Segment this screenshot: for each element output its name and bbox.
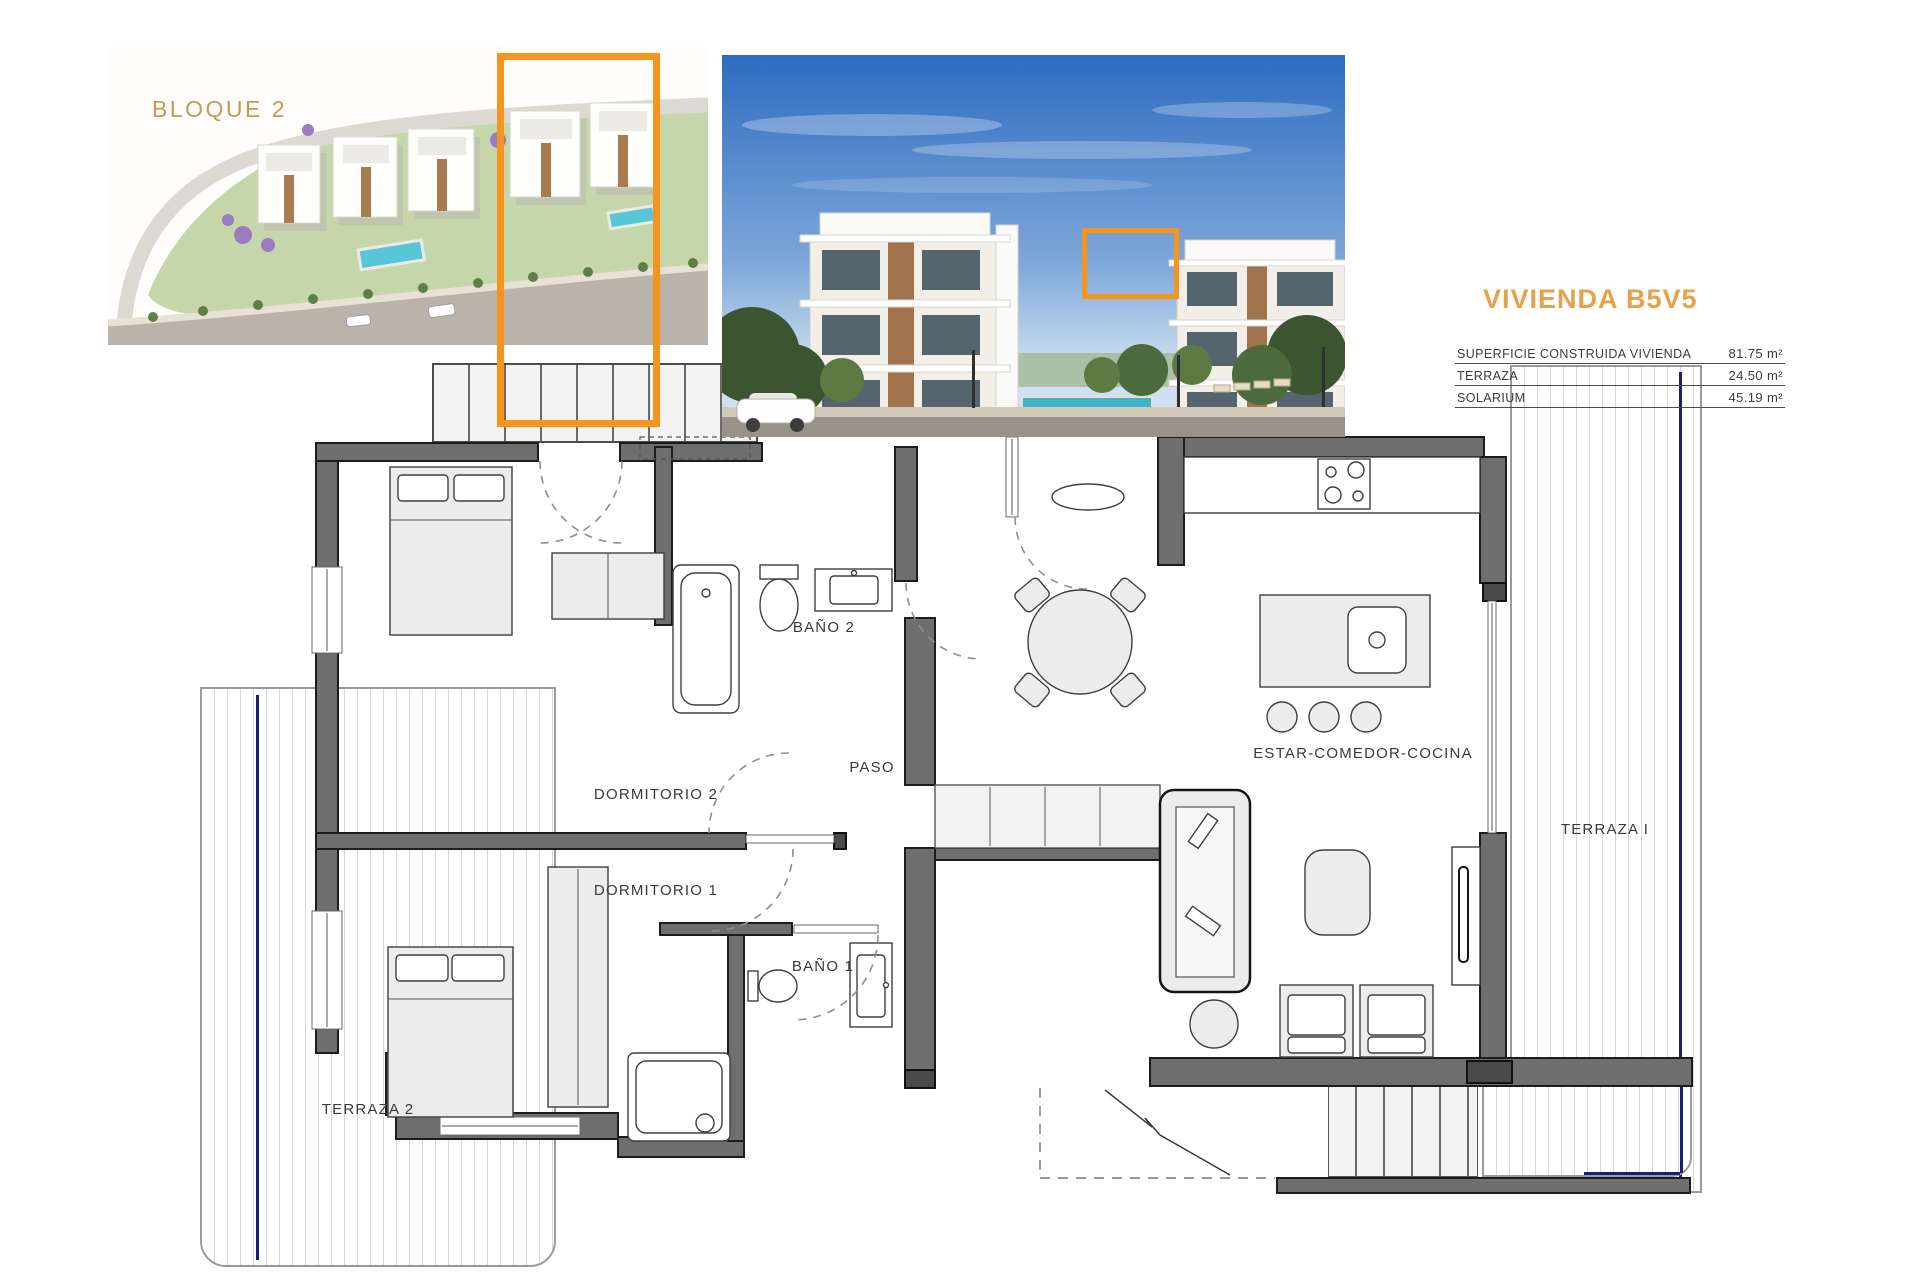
area-label: SOLARIUM — [1457, 391, 1526, 405]
porch-table — [1052, 484, 1124, 510]
hall-closet — [935, 785, 1160, 848]
aerial-car-2 — [346, 314, 371, 326]
room-label-paso: PASO — [849, 759, 894, 776]
photo-highlight-box — [1082, 228, 1179, 299]
room-label-dormitorio-1: DORMITORIO 1 — [594, 882, 718, 899]
floor-plan: DORMITORIO 2 BAÑO 2 PASO DORMITORIO 1 BA… — [200, 355, 1720, 1270]
armchair — [1280, 985, 1353, 1057]
room-label-terraza-2: TERRAZA 2 — [322, 1101, 415, 1118]
area-value: 81.75 m² — [1728, 346, 1783, 361]
bar-stool — [1267, 702, 1297, 732]
armchair — [1360, 985, 1433, 1057]
room-label-bano-2: BAÑO 2 — [793, 619, 855, 636]
photo-road — [722, 417, 1345, 437]
bar-stool — [1351, 702, 1381, 732]
coffee-table — [1305, 850, 1370, 935]
area-label: SUPERFICIE CONSTRUIDA VIVIENDA — [1457, 347, 1691, 361]
area-value: 45.19 m² — [1728, 390, 1783, 405]
building-photo-render — [722, 55, 1345, 437]
area-label: TERRAZA — [1457, 369, 1518, 383]
room-label-estar: ESTAR-COMEDOR-COCINA — [1253, 745, 1473, 762]
bloque-label: BLOQUE 2 — [152, 96, 287, 123]
floor-plan-drawing: DORMITORIO 2 BAÑO 2 PASO DORMITORIO 1 BA… — [200, 355, 1720, 1270]
dining-table — [1028, 590, 1132, 694]
aerial-highlight-box — [497, 53, 660, 427]
areas-row-vivienda: SUPERFICIE CONSTRUIDA VIVIENDA 81.75 m² — [1455, 342, 1785, 364]
toilet-bano-1 — [748, 971, 758, 1001]
area-value: 24.50 m² — [1728, 368, 1783, 383]
room-label-dormitorio-2: DORMITORIO 2 — [594, 786, 718, 803]
plan-sheet-page: BLOQUE 2 — [0, 0, 1920, 1280]
areas-row-terraza: TERRAZA 24.50 m² — [1455, 364, 1785, 386]
areas-table: SUPERFICIE CONSTRUIDA VIVIENDA 81.75 m² … — [1455, 342, 1785, 408]
room-label-bano-1: BAÑO 1 — [792, 958, 854, 975]
unit-title: VIVIENDA B5V5 — [1483, 284, 1698, 315]
room-labels-layer: DORMITORIO 2 BAÑO 2 PASO DORMITORIO 1 BA… — [322, 619, 1649, 1118]
bar-stool — [1309, 702, 1339, 732]
toilet-bano-2 — [760, 565, 798, 579]
tv-screen — [1459, 867, 1468, 962]
stair-break-line — [1105, 1090, 1230, 1175]
side-table — [1190, 1000, 1238, 1048]
photo-left-building — [800, 213, 1018, 437]
room-label-terraza-1: TERRAZA I — [1561, 821, 1649, 838]
areas-row-solarium: SOLARIUM 45.19 m² — [1455, 386, 1785, 408]
